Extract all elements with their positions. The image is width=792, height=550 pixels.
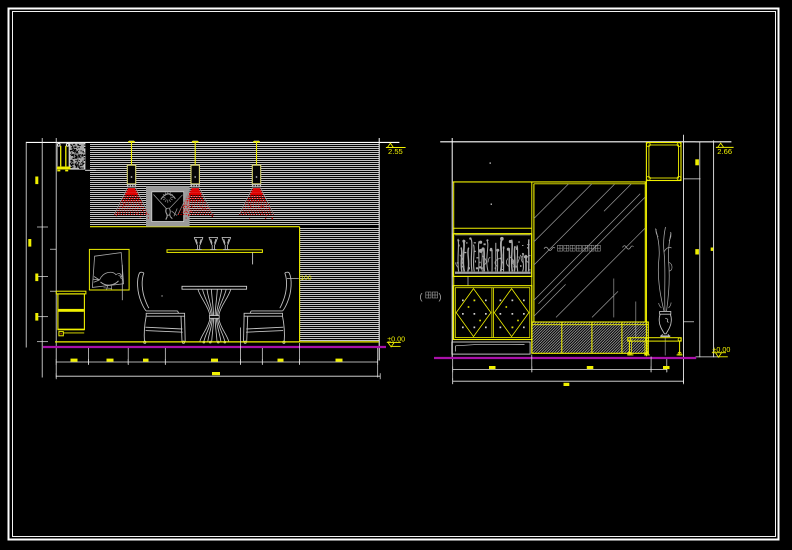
svg-text:(: ( bbox=[420, 292, 423, 302]
svg-text:): ) bbox=[439, 292, 442, 302]
svg-text:2.66: 2.66 bbox=[717, 147, 732, 156]
svg-text:2.55: 2.55 bbox=[388, 147, 403, 156]
svg-text:100: 100 bbox=[300, 275, 312, 282]
